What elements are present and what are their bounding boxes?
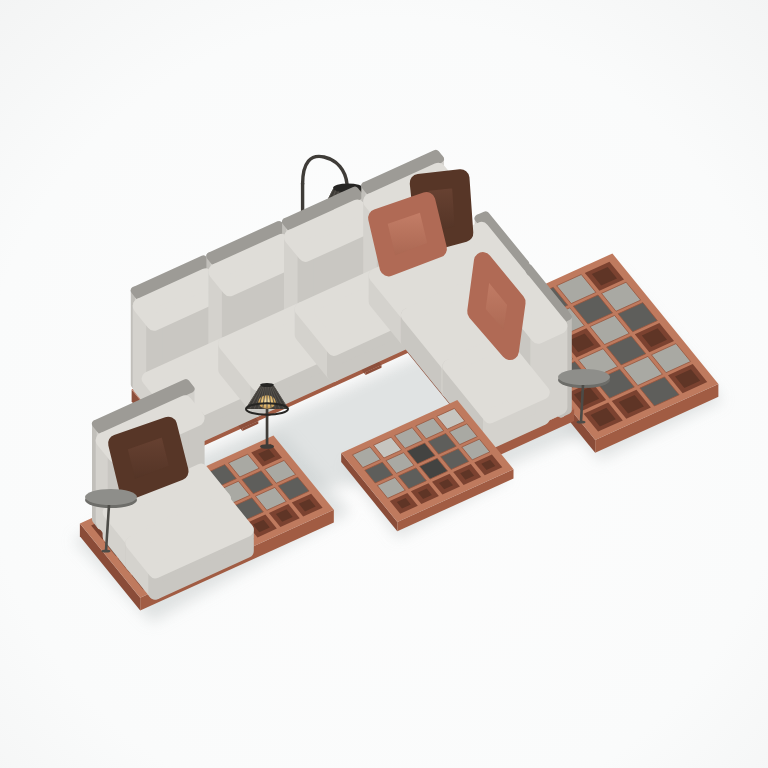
side-table-left-top (85, 489, 137, 505)
side-table-right-top (558, 369, 610, 385)
accent-pillow-rust-corner (377, 201, 438, 267)
lumbar-pillow-brown (117, 426, 180, 491)
render-canvas (0, 0, 768, 768)
side-table-right-base (577, 420, 586, 423)
product-render (0, 0, 768, 768)
side-table-left-base (102, 549, 111, 552)
table-lamp-base (260, 444, 274, 449)
table-lamp-shade-cap (260, 383, 274, 387)
